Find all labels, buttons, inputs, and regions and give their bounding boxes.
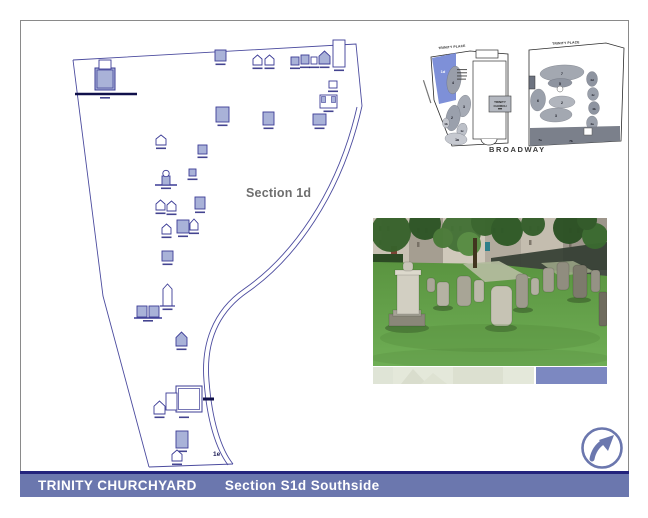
subtitle-text: Section S1d Southside <box>225 478 380 493</box>
title-bar: TRINITY CHURCHYARD Section S1d Southside <box>20 474 629 497</box>
photo-fade-strip <box>373 367 534 384</box>
app-window: Section 1d 1e TRINITYCHURCH <box>0 0 648 518</box>
title-text: TRINITY CHURCHYARD <box>38 478 197 493</box>
broadway-label: BROADWAY <box>489 145 546 154</box>
plan-section-label: Section 1d <box>246 186 311 200</box>
accent-rect <box>536 367 607 384</box>
next-button[interactable] <box>580 426 624 470</box>
arrow-up-right-icon <box>580 426 624 470</box>
plan-corner-label: 1e <box>213 451 220 458</box>
tree-trunk <box>473 238 477 268</box>
churchyard-photo <box>373 218 607 366</box>
